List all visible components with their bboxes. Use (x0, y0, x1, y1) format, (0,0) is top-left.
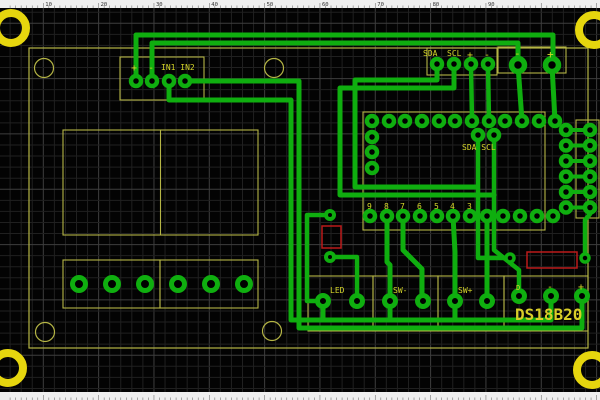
mcu-top-pad[interactable] (400, 116, 410, 126)
ruler-number: 70 (377, 2, 384, 8)
mcu-bottom-pad[interactable] (448, 211, 458, 221)
mcu-top-pad[interactable] (417, 116, 427, 126)
mcu-bottom-pad[interactable] (515, 211, 525, 221)
sda-connector-pad[interactable] (449, 59, 459, 69)
mcu-top-pad[interactable] (367, 116, 377, 126)
mcu-pin-number: 3 (467, 202, 472, 211)
scl-label: SCL (447, 49, 462, 58)
mcu-left-pad[interactable] (367, 132, 377, 142)
mcu-top-pad[interactable] (467, 116, 477, 126)
mcu-sda-scl-pad[interactable] (489, 130, 499, 140)
in-connector-pad[interactable] (164, 76, 174, 86)
in-plus-label: + (131, 63, 137, 74)
mcu-bottom-pad[interactable] (532, 211, 542, 221)
mcu-sda-scl-label: SDA SCL (462, 143, 496, 152)
mcu-bottom-pad[interactable] (382, 211, 392, 221)
mcu-top-pad[interactable] (384, 116, 394, 126)
terminal-block-pad[interactable] (73, 278, 86, 291)
ruler-top: 102030405060708090 (0, 0, 600, 8)
mcu-top-pad[interactable] (517, 116, 527, 126)
mcu-pin-number: 7 (400, 202, 405, 211)
ruler-number: 40 (211, 2, 218, 8)
sw-minus-pad[interactable] (418, 296, 429, 307)
copper-trace[interactable] (488, 64, 489, 121)
mcu-bottom-pad[interactable] (432, 211, 442, 221)
terminal-block-pad[interactable] (106, 278, 119, 291)
in-connector-pad[interactable] (147, 76, 157, 86)
right-header-pad[interactable] (561, 156, 571, 166)
mcu-pin-number: 8 (384, 202, 389, 211)
ruler-number: 90 (488, 2, 495, 8)
mcu-sda-scl-pad[interactable] (473, 130, 483, 140)
ruler-number: 80 (433, 2, 440, 8)
resistor-r2-pad[interactable] (506, 254, 514, 262)
ds18b20-plus-label: + (578, 282, 584, 293)
right-header-pad[interactable] (585, 187, 595, 197)
mcu-bottom-pad[interactable] (415, 211, 425, 221)
right-header-pad[interactable] (585, 203, 595, 213)
mcu-pin-number: 4 (450, 202, 455, 211)
ruler-number: 50 (267, 2, 274, 8)
ruler-number: 60 (322, 2, 329, 8)
right-header-pad[interactable] (585, 156, 595, 166)
mcu-bottom-pad[interactable] (482, 211, 492, 221)
mcu-left-pad[interactable] (367, 147, 377, 157)
mcu-pin-number: 9 (367, 202, 372, 211)
mcu-bottom-pad[interactable] (465, 211, 475, 221)
ruler-number: 10 (45, 2, 52, 8)
right-header-pad[interactable] (561, 172, 571, 182)
sda-connector-pad[interactable] (432, 59, 442, 69)
mcu-pin-number: 5 (434, 202, 439, 211)
power-plus-label: + (547, 48, 554, 61)
mcu-top-pad[interactable] (484, 116, 494, 126)
sda-plus-label: + (467, 50, 473, 61)
terminal-block-pad[interactable] (205, 278, 218, 291)
copper-trace[interactable] (471, 64, 472, 121)
power-minus-label: - (514, 47, 521, 60)
in-minus-label: - (148, 63, 154, 74)
resistor-r1-pad[interactable] (326, 211, 334, 219)
resistor-r1-pad[interactable] (326, 253, 334, 261)
mcu-top-pad[interactable] (500, 116, 510, 126)
ds18b20-d-label: D (516, 284, 520, 292)
right-header-pad[interactable] (585, 141, 595, 151)
right-header-pad[interactable] (561, 125, 571, 135)
pcb-editor-window: +-IN1 IN2SDASCL+--+SDA SCLLEDSW-SW+D-+DS… (0, 0, 600, 400)
led-label: LED (330, 286, 345, 295)
in-connector-pad[interactable] (131, 76, 141, 86)
ds18b20-minus-label: - (547, 282, 553, 293)
copper-trace[interactable] (453, 216, 455, 301)
ruler-number: 20 (101, 2, 108, 8)
ds18b20-label: DS18B20 (515, 305, 582, 324)
pcb-canvas[interactable]: +-IN1 IN2SDASCL+--+SDA SCLLEDSW-SW+D-+DS… (0, 0, 600, 400)
sda-minus-label: - (484, 50, 490, 61)
mcu-top-pad[interactable] (434, 116, 444, 126)
ruler-number: 30 (156, 2, 163, 8)
in1-in2-label: IN1 IN2 (161, 63, 195, 72)
sw-minus-pad[interactable] (385, 296, 396, 307)
terminal-block-pad[interactable] (238, 278, 251, 291)
mcu-bottom-pad[interactable] (548, 211, 558, 221)
terminal-block-pad[interactable] (172, 278, 185, 291)
right-header-pad[interactable] (561, 203, 571, 213)
terminal-block-pad[interactable] (139, 278, 152, 291)
ruler-bottom (0, 392, 600, 400)
led-pad[interactable] (318, 296, 329, 307)
ds18b20-pad[interactable] (514, 291, 525, 302)
right-header-pad[interactable] (585, 172, 595, 182)
mcu-top-pad[interactable] (534, 116, 544, 126)
mcu-top-pad[interactable] (550, 116, 560, 126)
sda-label: SDA (423, 49, 438, 58)
sw-plus-label: SW+ (458, 286, 473, 295)
sw-plus-pad[interactable] (482, 296, 493, 307)
mcu-left-pad[interactable] (367, 163, 377, 173)
power-connector-pad[interactable] (512, 59, 525, 72)
right-header-pad[interactable] (561, 187, 571, 197)
resistor-r2-pad[interactable] (581, 254, 589, 262)
mcu-bottom-pad[interactable] (365, 211, 375, 221)
mcu-bottom-pad[interactable] (498, 211, 508, 221)
led-pad[interactable] (352, 296, 363, 307)
sw-minus-label: SW- (393, 286, 407, 295)
sw-plus-pad[interactable] (450, 296, 461, 307)
right-header-pad[interactable] (585, 125, 595, 135)
mcu-bottom-pad[interactable] (398, 211, 408, 221)
mcu-top-pad[interactable] (450, 116, 460, 126)
right-header-pad[interactable] (561, 141, 571, 151)
mcu-pin-number: 6 (417, 202, 422, 211)
in-connector-pad[interactable] (180, 76, 190, 86)
